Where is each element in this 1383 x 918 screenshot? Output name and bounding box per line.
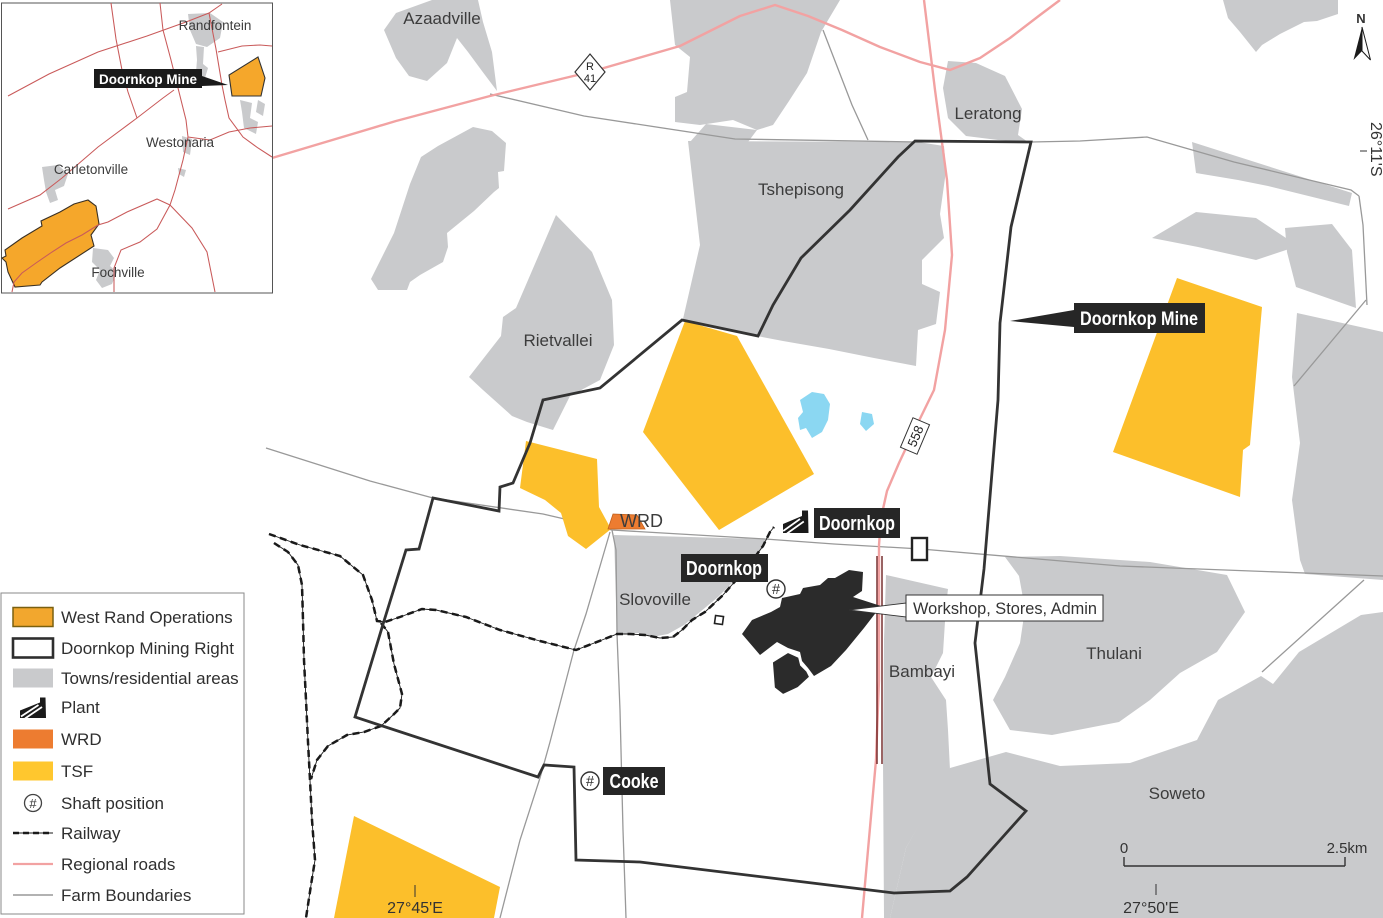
svg-text:Tshepisong: Tshepisong bbox=[758, 180, 844, 199]
svg-text:Workshop, Stores, Admin: Workshop, Stores, Admin bbox=[913, 599, 1097, 618]
svg-text:Azaadville: Azaadville bbox=[403, 9, 481, 28]
svg-text:West Rand Operations: West Rand Operations bbox=[61, 608, 233, 627]
svg-text:TSF: TSF bbox=[61, 762, 93, 781]
svg-text:Regional roads: Regional roads bbox=[61, 855, 175, 874]
svg-text:27°50'E: 27°50'E bbox=[1123, 900, 1179, 917]
svg-text:Doornkop Mining Right: Doornkop Mining Right bbox=[61, 639, 234, 658]
svg-text:#: # bbox=[29, 796, 37, 811]
svg-text:Doornkop: Doornkop bbox=[686, 558, 762, 580]
svg-text:#: # bbox=[772, 582, 780, 598]
svg-text:Thulani: Thulani bbox=[1086, 644, 1142, 663]
svg-text:Cooke: Cooke bbox=[610, 771, 659, 793]
svg-text:Bambayi: Bambayi bbox=[889, 662, 955, 681]
svg-text:R: R bbox=[586, 61, 594, 73]
svg-text:Rietvallei: Rietvallei bbox=[524, 331, 593, 350]
svg-text:Doornkop: Doornkop bbox=[819, 513, 895, 535]
svg-text:WRD: WRD bbox=[61, 730, 102, 749]
svg-text:26°11'S: 26°11'S bbox=[1367, 122, 1383, 177]
svg-text:Doornkop Mine: Doornkop Mine bbox=[99, 72, 197, 87]
svg-text:Plant: Plant bbox=[61, 698, 100, 717]
svg-text:Farm Boundaries: Farm Boundaries bbox=[61, 886, 191, 905]
svg-text:Towns/residential areas: Towns/residential areas bbox=[61, 669, 239, 688]
svg-text:Railway: Railway bbox=[61, 824, 121, 843]
svg-text:Soweto: Soweto bbox=[1149, 784, 1206, 803]
svg-text:Doornkop Mine: Doornkop Mine bbox=[1080, 309, 1198, 330]
svg-text:Fochville: Fochville bbox=[91, 265, 144, 280]
svg-text:N: N bbox=[1356, 11, 1365, 26]
svg-text:#: # bbox=[586, 774, 594, 790]
svg-text:2.5km: 2.5km bbox=[1327, 840, 1368, 857]
svg-text:Westonaria: Westonaria bbox=[146, 135, 215, 150]
svg-text:0: 0 bbox=[1120, 840, 1128, 857]
svg-text:Shaft position: Shaft position bbox=[61, 794, 164, 813]
svg-text:Randfontein: Randfontein bbox=[179, 18, 252, 33]
svg-text:27°45'E: 27°45'E bbox=[387, 900, 443, 917]
svg-text:Slovoville: Slovoville bbox=[619, 590, 691, 609]
svg-text:Leratong: Leratong bbox=[954, 104, 1021, 123]
svg-text:WRD: WRD bbox=[620, 511, 663, 531]
svg-text:41: 41 bbox=[584, 73, 596, 85]
svg-text:Carletonville: Carletonville bbox=[54, 162, 128, 177]
